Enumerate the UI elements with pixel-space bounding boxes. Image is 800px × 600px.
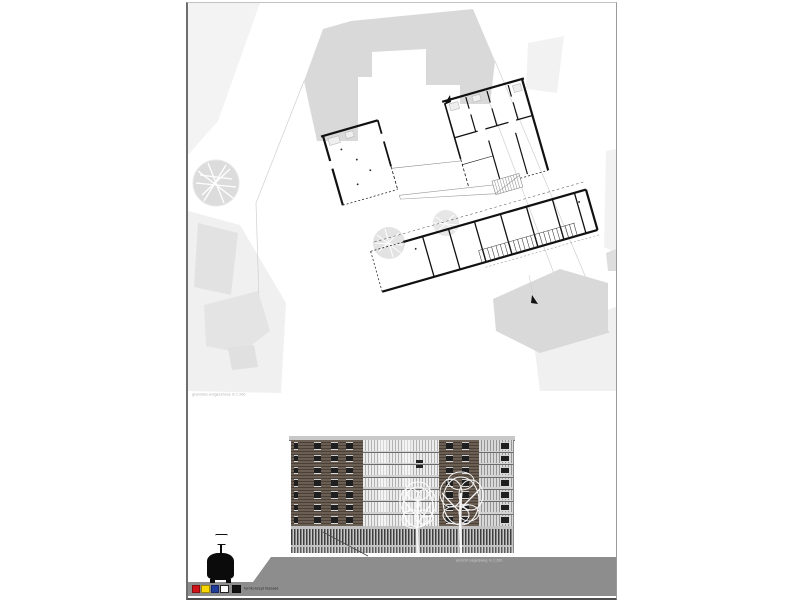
window <box>462 516 469 524</box>
window <box>331 491 338 499</box>
window <box>294 491 298 499</box>
floor-slab-line <box>363 512 439 515</box>
elevation-caption: ansicht nagelsweg m 1:200 <box>456 559 503 562</box>
window <box>501 504 509 512</box>
window <box>346 516 353 524</box>
window <box>501 516 509 524</box>
window <box>331 455 338 463</box>
window <box>446 516 453 524</box>
window <box>314 455 321 463</box>
legend-swatch-white <box>220 585 229 594</box>
window <box>501 491 509 499</box>
building-elevation <box>291 440 513 526</box>
legend-swatch-red <box>192 585 201 594</box>
facade-wood-section <box>439 440 479 526</box>
floor-slab-lines <box>363 440 439 526</box>
window <box>294 467 298 475</box>
floor-slab-line <box>363 463 439 466</box>
floor-slab-line <box>363 487 439 490</box>
tree-symbol <box>373 227 405 259</box>
window-column <box>331 440 338 526</box>
window <box>346 504 353 512</box>
window <box>446 442 453 450</box>
window <box>346 455 353 463</box>
window <box>314 516 321 524</box>
window <box>446 491 453 499</box>
window <box>446 455 453 463</box>
legend-swatch-yellow <box>201 585 210 594</box>
floor-slab-line <box>363 475 439 478</box>
facade-edge <box>513 440 514 553</box>
ground-floor-colonnade <box>291 526 513 553</box>
page: grundriss erdgeschoss m 1:200 <box>0 0 800 600</box>
window <box>331 516 338 524</box>
drawing-sheet: grundriss erdgeschoss m 1:200 <box>186 2 617 600</box>
window <box>331 504 338 512</box>
window <box>501 455 509 463</box>
window <box>314 491 321 499</box>
window <box>501 467 509 475</box>
window <box>314 442 321 450</box>
facade-glass-section <box>363 440 439 526</box>
window <box>294 442 298 450</box>
window <box>446 479 453 487</box>
floor-slab-line <box>363 451 439 454</box>
site-plan-drawing <box>188 3 616 423</box>
sculpture-body <box>207 553 234 580</box>
legend-label: farbkonzept fassade <box>244 587 279 590</box>
window <box>294 479 298 487</box>
window <box>462 479 469 487</box>
legend-swatch-black <box>232 585 241 594</box>
window <box>346 467 353 475</box>
window <box>462 491 469 499</box>
legend-swatch-blue <box>211 585 220 594</box>
window <box>294 516 298 524</box>
window <box>346 479 353 487</box>
window-column <box>346 440 353 526</box>
sculpture-foot <box>226 579 231 583</box>
window-column <box>446 440 453 526</box>
tree-symbol <box>193 160 239 206</box>
window-column <box>294 440 298 526</box>
window <box>331 442 338 450</box>
window <box>462 467 469 475</box>
entrance-arrow <box>444 95 538 304</box>
window <box>501 442 509 450</box>
window <box>446 467 453 475</box>
window <box>346 442 353 450</box>
window-column <box>501 440 509 526</box>
sculpture-foot <box>210 579 215 583</box>
window <box>314 504 321 512</box>
window <box>462 504 469 512</box>
window <box>501 479 509 487</box>
window <box>294 504 298 512</box>
window <box>314 479 321 487</box>
window <box>446 504 453 512</box>
window <box>294 455 298 463</box>
site-plan-caption: grundriss erdgeschoss m 1:200 <box>192 393 246 396</box>
window <box>346 491 353 499</box>
window-column <box>314 440 321 526</box>
window <box>331 467 338 475</box>
floor-slab-line <box>363 500 439 503</box>
window <box>462 455 469 463</box>
window <box>331 479 338 487</box>
window <box>462 442 469 450</box>
floor-plan <box>321 70 601 301</box>
window-column <box>462 440 469 526</box>
window <box>314 467 321 475</box>
